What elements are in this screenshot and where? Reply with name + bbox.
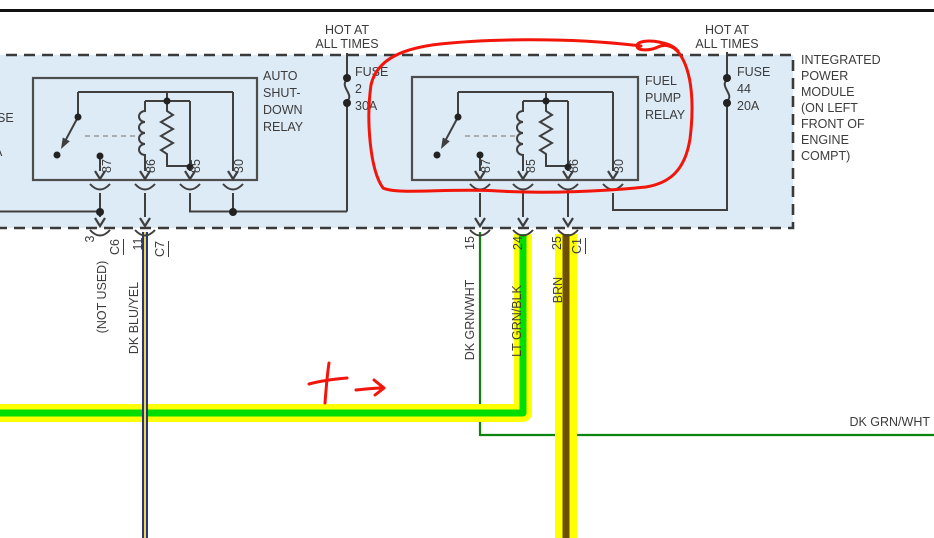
- hot-at-all-times-left: HOT AT ALL TIMES: [287, 23, 407, 51]
- wiring-diagram: HOT AT ALL TIMES HOT AT ALL TIMES FUSE 2…: [0, 0, 934, 538]
- not-used-label: (NOT USED): [95, 261, 109, 334]
- connector-c1: C1: [570, 238, 586, 254]
- hot-at-all-times-right: HOT AT ALL TIMES: [667, 23, 787, 51]
- fp-pin-87: 87: [479, 159, 493, 173]
- fp-pin-85: 85: [524, 159, 538, 173]
- connector-c7: C7: [153, 241, 169, 257]
- asd-pin-85: 85: [189, 159, 203, 173]
- brn-label: BRN: [551, 277, 565, 303]
- asd-relay-label: AUTO SHUT- DOWN RELAY: [263, 68, 303, 136]
- integrated-power-module-label: INTEGRATED POWER MODULE (ON LEFT FRONT O…: [801, 52, 881, 164]
- connector-pin-15: 15: [463, 236, 477, 250]
- fuel-pump-relay-label: FUEL PUMP RELAY: [645, 73, 685, 124]
- fuse-2-label: FUSE 2 30A: [355, 64, 388, 115]
- fp-pin-30: 30: [612, 159, 626, 173]
- connector-pin-11: 11: [131, 238, 145, 251]
- connector-pin-3: 3: [83, 236, 97, 243]
- asd-pin-86: 86: [144, 159, 158, 173]
- fuse-44-label: FUSE 44 20A: [737, 64, 770, 115]
- lt-grn-blk-label: LT GRN/BLK: [510, 285, 524, 357]
- dk-grn-wht-right-label: DK GRN/WHT: [822, 414, 930, 430]
- asd-pin-87: 87: [100, 159, 114, 173]
- dk-grn-wht-label: DK GRN/WHT: [463, 280, 477, 361]
- dk-blu-yel-label: DK BLU/YEL: [127, 282, 141, 354]
- connector-c6: C6: [108, 239, 124, 255]
- asd-pin-30: 30: [232, 159, 246, 173]
- wire-lt-grn-highlight: [0, 234, 523, 413]
- wire-group: [0, 232, 934, 538]
- left-edge-rating-fragment: A: [0, 144, 2, 160]
- wire-lt-grn-blk: [0, 234, 523, 413]
- fp-pin-86: 86: [567, 159, 581, 173]
- wire-dk-grn-wht: [480, 232, 934, 435]
- left-edge-fuse-fragment: SE: [0, 110, 14, 126]
- connector-pin-25: 25: [550, 236, 564, 250]
- circuit-artwork: [0, 0, 934, 538]
- connector-pin-24: 24: [511, 236, 525, 250]
